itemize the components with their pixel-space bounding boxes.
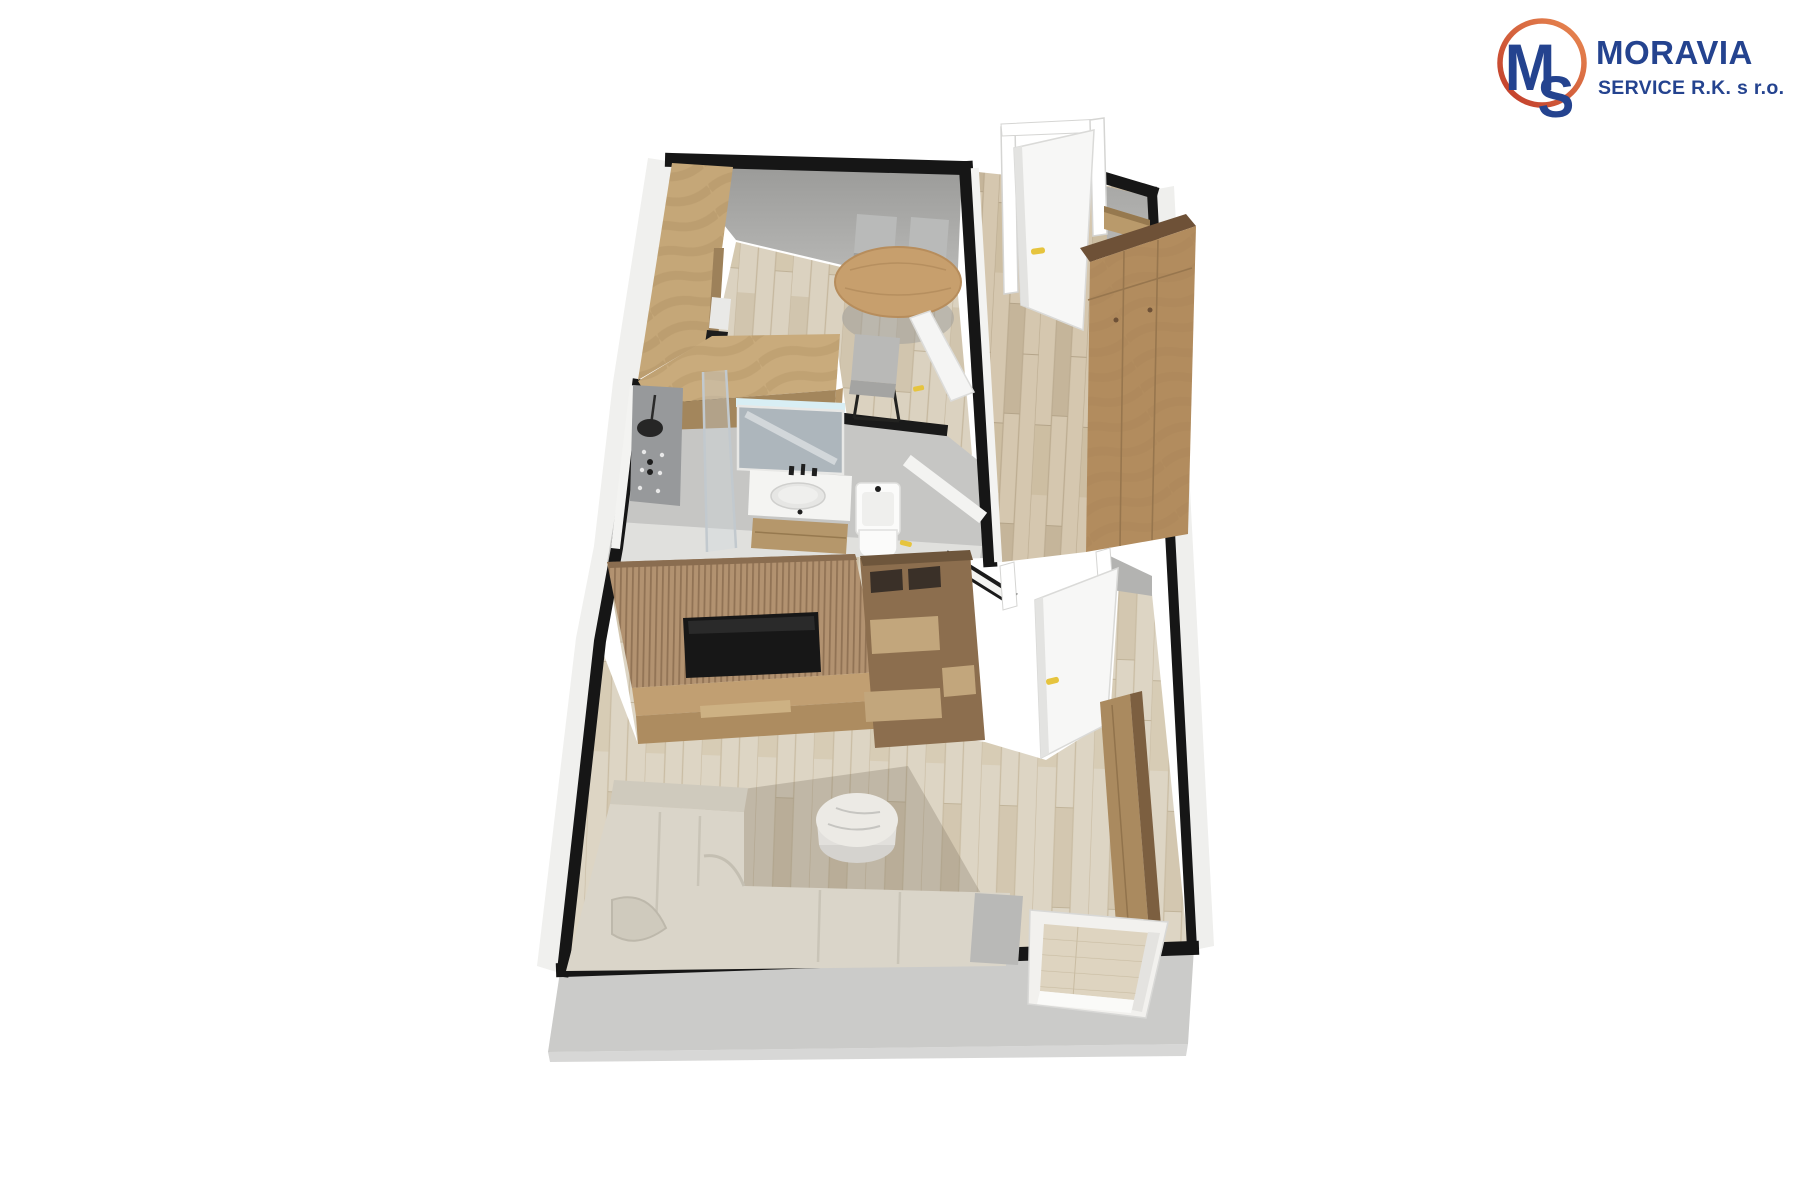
living-room-door	[1000, 548, 1118, 758]
logo-brand-text: MORAVIA	[1596, 34, 1753, 71]
company-logo: M S MORAVIA SERVICE R.K. s r.o.	[1490, 10, 1790, 120]
dining-table	[835, 247, 961, 317]
sofa-throw	[970, 893, 1023, 965]
logo-subtitle-text: SERVICE R.K. s r.o.	[1598, 77, 1784, 99]
coffee-table	[816, 793, 898, 863]
floorplan-render	[0, 0, 1800, 1200]
vanity-mirror	[736, 398, 845, 474]
toilet	[856, 483, 900, 560]
logo-monogram-s: S	[1538, 65, 1575, 120]
floorplan-page: M S MORAVIA SERVICE R.K. s r.o.	[0, 0, 1800, 1200]
hallway-wardrobe	[1080, 214, 1196, 552]
tv	[683, 612, 821, 678]
balcony	[1028, 910, 1168, 1018]
drawer-unit	[860, 550, 985, 748]
shower	[630, 385, 683, 506]
vanity-sink	[748, 464, 852, 554]
